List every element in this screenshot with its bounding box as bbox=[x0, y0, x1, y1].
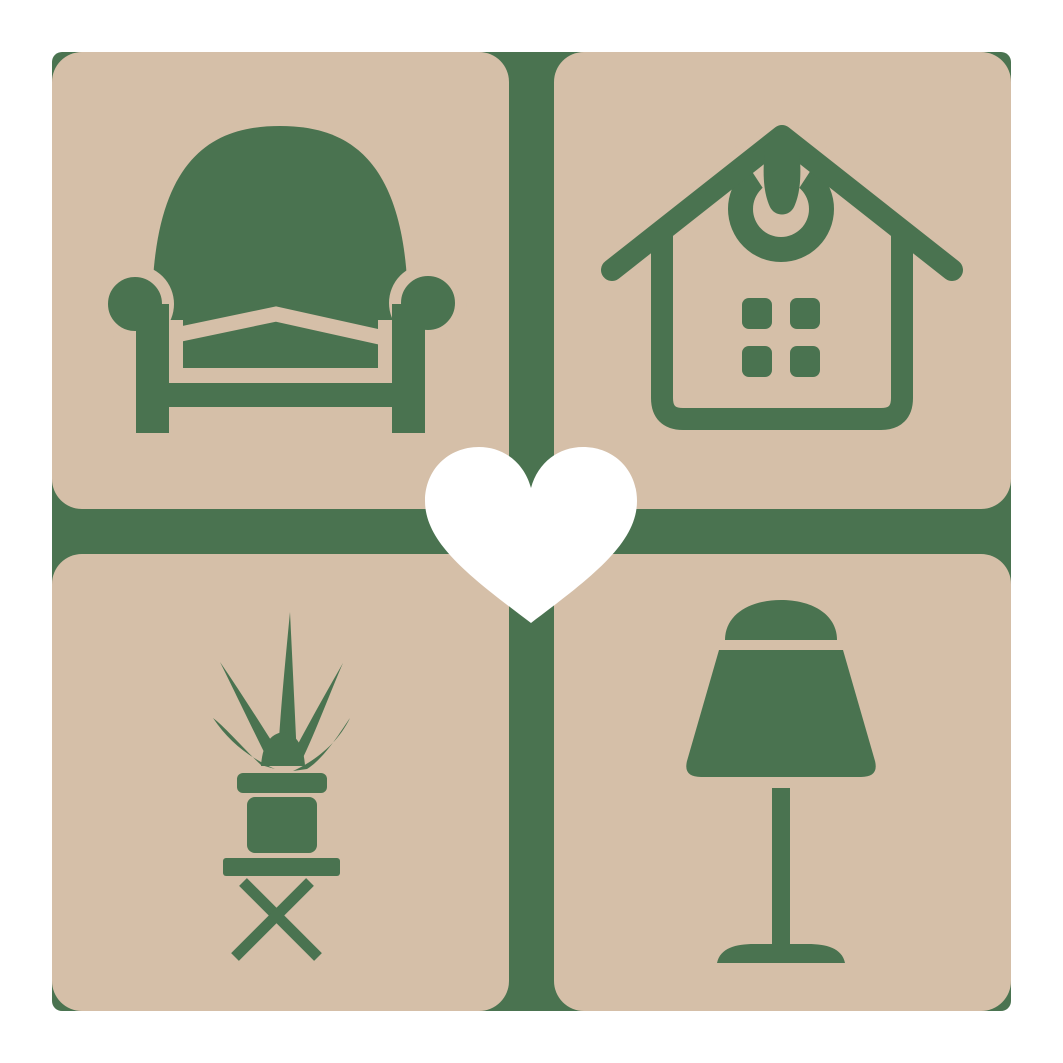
house-window-pane bbox=[790, 298, 820, 329]
logo-canvas: { "logo": { "name": "home-decor-furnitur… bbox=[0, 0, 1063, 1063]
house-icon bbox=[554, 52, 1011, 509]
logo-base-cross bbox=[52, 52, 1011, 1011]
plant-pot-rim bbox=[237, 773, 327, 793]
armchair-left-leg bbox=[136, 304, 169, 433]
tile-top-right bbox=[554, 52, 1011, 509]
plant-pot-body bbox=[247, 797, 317, 853]
table-top bbox=[223, 858, 340, 876]
lamp-cap bbox=[725, 600, 837, 640]
lamp-stem bbox=[772, 788, 790, 947]
armchair-icon bbox=[52, 52, 509, 509]
lamp-base bbox=[717, 944, 845, 963]
house-window-pane bbox=[742, 298, 772, 329]
armchair-right-gap bbox=[378, 320, 393, 368]
armchair-left-gap bbox=[168, 320, 183, 368]
heart-shape bbox=[425, 447, 637, 623]
house-droplet bbox=[764, 148, 801, 215]
armchair-rail bbox=[136, 383, 425, 407]
heart-icon bbox=[425, 447, 637, 623]
table-leg bbox=[243, 882, 318, 957]
armchair-under-seat-gap bbox=[183, 368, 377, 384]
house-window-pane bbox=[742, 346, 772, 377]
house-window-pane bbox=[790, 346, 820, 377]
armchair-right-leg bbox=[392, 304, 425, 433]
lamp-shade bbox=[686, 650, 875, 777]
table-leg bbox=[235, 882, 310, 957]
tile-top-left bbox=[52, 52, 509, 509]
